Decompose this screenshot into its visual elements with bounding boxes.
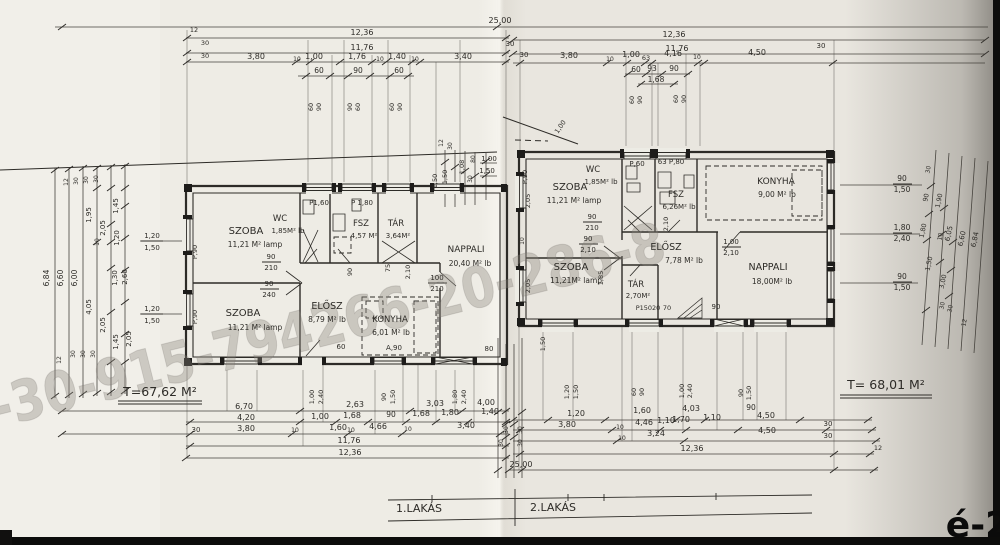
dim-2500-top: 25,00 [489, 16, 512, 25]
a2-room-nappali-area: 18,00M² lb [752, 277, 792, 286]
left-top-30b: 30 [83, 176, 90, 184]
a2-top-450: 4,50 [748, 48, 766, 57]
a1-door2-w: 90 [265, 280, 274, 288]
left-top-12: 12 [63, 178, 70, 186]
a2-top-63: 63 [642, 54, 650, 62]
bottom-left-corner [0, 530, 12, 545]
a2-room-elosz: ELŐSZ [650, 242, 682, 253]
a2-room-wc-area: 1,85M² lb [584, 178, 618, 186]
a1-bot-168b: 1,68 [412, 409, 430, 418]
a2-room-fsz: FSZ [668, 190, 684, 200]
a1-top-140: 1,40 [388, 52, 406, 61]
a1-door2-h: 240 [262, 291, 275, 299]
a2-call3-w: 1,00 [678, 384, 686, 398]
floor-plan-scan: 06-30-915-794266-20-286-8T=67,62 M²T= 68… [0, 0, 1000, 545]
a2-top-30a: 30 [506, 40, 515, 48]
a1-top-60a: 60 [314, 66, 324, 75]
a2-room-szoba2-area: 11,21M² lamp [550, 276, 602, 285]
mid-150b: 1,50 [441, 170, 449, 184]
a2-top-1236: 12,36 [663, 30, 686, 39]
a1-bot-670: 6,70 [235, 402, 253, 411]
a2-call3-h: 2,40 [686, 384, 694, 398]
left-bot-30a: 30 [70, 350, 77, 358]
a1-bot-30: 30 [192, 426, 201, 434]
a1-top-10b: 10 [376, 56, 384, 63]
a1-top-1176: 11,76 [351, 43, 374, 52]
a2-door3-w: 90 [584, 235, 593, 243]
a2-sill-90a: 90 [636, 96, 644, 104]
a1-bot-100: 1,00 [311, 412, 329, 421]
a1-room-tar-area: 3,64M² [386, 232, 411, 240]
a1-winL1-h: 1,50 [144, 244, 160, 252]
a2-bot-110b: 1,10 [703, 413, 721, 422]
a1-top-100: 1,00 [305, 52, 323, 61]
a1-top-1236: 12,36 [351, 28, 374, 37]
a2-rot-210: 2,10 [662, 217, 670, 231]
midb-150: 1,50 [539, 337, 547, 351]
a1-bot-168a: 1,68 [343, 411, 361, 420]
a1-winL1-w: 1,20 [144, 232, 160, 240]
a2-dim-90door: 90 [712, 303, 721, 311]
a1-sill-90b: 90 [346, 103, 354, 111]
a2-room-wc: WC [586, 165, 600, 175]
a1-rot-90door: 90 [346, 268, 354, 276]
a2-bot-160: 1,60 [633, 406, 651, 415]
a2-top-380: 3,80 [560, 51, 578, 60]
a1-room-szoba2-area: 11,21 M² lamp [228, 323, 283, 332]
left-bot-12: 12 [56, 356, 63, 364]
a2-win-p15020: P15020 [636, 304, 661, 312]
a1-sill-60a: 60 [307, 103, 315, 111]
a2-top-416: 4,16 [664, 49, 682, 58]
a1-bot-340: 3,40 [457, 421, 475, 430]
r-win1-h: 1,50 [894, 185, 911, 194]
a1-door3-w: 100 [430, 274, 443, 282]
a2-top-10a: 10 [606, 56, 614, 63]
a1-door-a90: A,90 [386, 344, 402, 352]
a1-bot-420: 4,20 [237, 413, 255, 422]
left-660: 6,60 [56, 269, 65, 286]
r-win2-w: 90 [897, 272, 907, 281]
a1-rot-210: 2,10 [404, 265, 412, 279]
a2-call4-w: 90 [737, 389, 745, 397]
left-130: 1,30 [111, 270, 119, 286]
a2-bot-170: 1,70 [672, 415, 690, 424]
r-door-w: 1,80 [894, 223, 911, 232]
a1-bot-160: 1,60 [329, 423, 347, 432]
a2-bot-10b: 10 [618, 435, 626, 442]
mid-12: 12 [438, 139, 445, 147]
a1-room-nappali: NAPPALI [448, 245, 485, 255]
a2-room-elosz-area: 7,78 M² lb [665, 256, 703, 265]
a1-call2-w: 90 [380, 393, 388, 401]
left-120: 1,20 [113, 230, 121, 246]
a1-win-p180: P 1,80 [351, 199, 373, 207]
left-405: 4,05 [85, 299, 93, 315]
a2-door1-w: 1,00 [723, 238, 739, 246]
left-195: 1,95 [85, 207, 93, 223]
a2-call1-w: 1,20 [563, 385, 571, 399]
a1-bot-380: 3,80 [237, 424, 255, 433]
a1-winL2-w: 1,20 [144, 305, 160, 313]
a1-bot-90: 90 [386, 410, 396, 419]
a1-bot-1176: 11,76 [338, 436, 361, 445]
a2-bot-450a: 4,50 [757, 411, 775, 420]
a2-room-fsz-area: 6,26M² lb [662, 203, 696, 211]
total-area-1: T=67,62 M² [122, 384, 197, 399]
a2-bot-1236: 12,36 [681, 444, 704, 453]
a1-room-elosz-area: 8,79 M² lb [308, 315, 346, 324]
right-90: 90 [921, 193, 931, 203]
dim-2500-bottom: 25,00 [510, 460, 533, 469]
midb-30a: 30 [503, 426, 510, 434]
right-shadow [845, 0, 1000, 545]
a2-call2-h: 90 [638, 388, 646, 396]
floor-plan-svg: 06-30-915-794266-20-286-8T=67,62 M²T= 68… [0, 0, 1000, 545]
a1-bot-400: 4,00 [477, 398, 495, 407]
a1-top-176: 1,76 [348, 52, 366, 61]
a1-top-10a: 10 [293, 56, 301, 63]
a1-win-p160: P1,60 [309, 199, 329, 207]
left-top-30a: 30 [73, 177, 80, 185]
a2-bot-380: 3,80 [558, 420, 576, 429]
mid-80: 80 [470, 155, 477, 163]
a2-rot-205b: 2,05 [524, 279, 532, 293]
a1-room-nappali-area: 20,40 M² lb [449, 259, 492, 268]
left-145a: 1,45 [112, 198, 120, 214]
mid-30b: 30 [447, 142, 454, 150]
a1-room-wc-area: 1,85M² lb [271, 227, 305, 235]
a1-sill-60c: 60 [388, 103, 396, 111]
midb-30d: 30 [517, 439, 524, 447]
a2-rot-10: 10 [519, 237, 526, 245]
unit-2-label: 2.LAKÁS [530, 501, 576, 514]
r-win2-h: 1,50 [894, 283, 911, 292]
a2-door3-h: 2,10 [580, 246, 596, 254]
a1-winL2-h: 1,50 [144, 317, 160, 325]
r-door-h: 2,40 [894, 234, 911, 243]
a2-sill-60b: 60 [672, 95, 680, 103]
a1-call1-h: 2,40 [317, 390, 325, 404]
a2-bot-30a: 30 [824, 420, 833, 428]
a1-sill-60b: 60 [354, 103, 362, 111]
left-684: 6,84 [42, 269, 51, 286]
right-black-strip [993, 0, 1000, 545]
a2-call1-h: 1,50 [572, 385, 580, 399]
a2-sill-90b: 90 [680, 95, 688, 103]
a1-door1-h: 210 [264, 264, 277, 272]
a1-room-tar: TÁR [387, 217, 404, 229]
a2-bot-403: 4,03 [682, 404, 700, 413]
a2-door2-h: 210 [585, 224, 598, 232]
a2-dim-70: 70 [663, 304, 671, 312]
a1-rot-75: 75 [384, 264, 392, 272]
midb-30b: 30 [517, 426, 524, 434]
a2-bot-450b: 4,50 [758, 426, 776, 435]
a2-win-p60: P,60 [629, 160, 644, 168]
left-205b: 2,05 [99, 317, 107, 333]
a1-top-30a: 30 [201, 39, 209, 47]
a1-door1-w: 90 [267, 253, 276, 261]
a1-bot-303: 3,03 [426, 399, 444, 408]
a2-room-tar: TÁR [627, 278, 644, 290]
mid-100: 1,00 [481, 155, 497, 163]
a1-bot-180: 1,80 [441, 408, 459, 417]
a1-room-fsz: FSZ [353, 219, 369, 229]
left-10: 10 [94, 238, 101, 246]
a1-room-fsz-area: 4,57 M² [351, 232, 378, 240]
a1-sill-90c: 90 [396, 103, 404, 111]
a2-call4-h: 1,50 [745, 386, 753, 400]
a2-rot-205a: 2,05 [524, 194, 532, 208]
a2-bot-10a: 10 [616, 424, 624, 431]
a1-top-60b: 60 [394, 66, 404, 75]
a1-rot-p90b: P,90 [191, 310, 199, 324]
a1-bot-466: 4,66 [369, 422, 387, 431]
a1-top-340: 3,40 [454, 52, 472, 61]
a2-bot-90: 90 [746, 403, 756, 412]
mid-30: 30 [467, 175, 474, 183]
a1-bot-1236: 12,36 [339, 448, 362, 457]
a1-room-wc: WC [273, 214, 287, 224]
a2-top-100: 1,00 [622, 50, 640, 59]
a1-dim-80: 80 [485, 345, 494, 353]
bottom-black-strip [0, 537, 1000, 545]
a2-call2-w: 60 [630, 388, 638, 396]
a1-room-elosz: ELŐSZ [311, 301, 343, 312]
r-win1-w: 90 [897, 174, 907, 183]
a2-bot-120: 1,20 [567, 409, 585, 418]
a1-bot-10c: 10 [404, 426, 412, 433]
a1-bot-10a: 10 [291, 427, 299, 434]
left-top-30c: 30 [93, 175, 100, 183]
a1-call1-w: 1,00 [308, 390, 316, 404]
corner-stamp: é-2 [946, 505, 1000, 545]
mid-108: 1,08 [458, 160, 466, 174]
a2-room-nappali: NAPPALI [748, 262, 787, 273]
left-260: 2,60 [121, 269, 129, 285]
a1-room-szoba1-area: 11,21 M² lamp [228, 240, 283, 249]
a2-room-tar-area: 2,70M² [626, 292, 651, 300]
a2-room-szoba1: SZOBA [553, 182, 588, 193]
a1-top-10c: 10 [411, 56, 419, 63]
botright-12: 12 [874, 444, 882, 452]
a1-top-12: 12 [190, 26, 198, 34]
a1-call3-w: 1,80 [451, 390, 459, 404]
a2-rot-185: 1,85 [597, 271, 605, 285]
a1-top-380: 3,80 [247, 52, 265, 61]
a1-bot-263: 2,63 [346, 400, 364, 409]
a1-dim-60: 60 [337, 343, 346, 351]
a2-top-168: 1,68 [648, 75, 665, 84]
left-bot-30b: 30 [80, 350, 87, 358]
a2-door2-w: 90 [588, 213, 597, 221]
a2-bot-324: 3,24 [647, 429, 665, 438]
left-205a: 2,05 [99, 220, 107, 236]
a2-top-90: 90 [669, 64, 679, 73]
mid-150c: 1,50 [479, 167, 495, 175]
a2-room-konyha: KONYHA [757, 177, 795, 187]
total-area-2: T= 68,01 M² [846, 377, 925, 392]
a2-room-szoba2: SZOBA [554, 262, 589, 273]
a1-bot-140: 1,40 [481, 407, 499, 416]
a1-room-konyha-area: 6,01 M² lb [372, 328, 410, 337]
a2-bot-30b: 30 [824, 432, 833, 440]
a1-room-konyha: KONYHA [372, 315, 408, 325]
a2-win-p80: 63 P,80 [658, 158, 685, 166]
a1-room-szoba2: SZOBA [226, 308, 261, 319]
left-600: 6,00 [70, 269, 79, 286]
a1-sill-90a: 90 [315, 103, 323, 111]
left-205c: 2,05 [125, 331, 133, 347]
a1-call3-h: 2,40 [460, 390, 468, 404]
a1-top-90: 90 [353, 66, 363, 75]
midb-30c: 30 [498, 439, 505, 447]
a2-top-30b: 30 [520, 51, 529, 59]
a1-call2-h: 1,50 [389, 390, 397, 404]
left-bot-30c: 30 [90, 350, 97, 358]
unit-1-label: 1.LAKÁS [396, 502, 442, 515]
a1-rot-p90a: P,90 [191, 245, 199, 259]
a2-door1-h: 2,10 [723, 249, 739, 257]
a2-rot-p90: P,90 [521, 170, 529, 184]
a2-room-szoba1-area: 11,21 M² lamp [547, 196, 602, 205]
a1-door3-h: 210 [430, 285, 443, 293]
a1-room-szoba1: SZOBA [229, 226, 264, 237]
a2-top-30c: 30 [817, 42, 826, 50]
a1-top-30b: 30 [201, 52, 209, 60]
mid-150a: 1,50 [431, 174, 439, 188]
a1-bot-10b: 10 [347, 427, 355, 434]
a2-top-93: 93 [647, 64, 657, 73]
left-145b: 1,45 [112, 334, 120, 350]
a2-bot-446: 4,46 [635, 418, 653, 427]
a2-top-10b: 10 [693, 54, 701, 61]
a2-sill-60a: 60 [628, 96, 636, 104]
a2-top-60: 60 [631, 65, 641, 74]
a2-room-konyha-area: 9,00 M² lb [758, 190, 796, 199]
